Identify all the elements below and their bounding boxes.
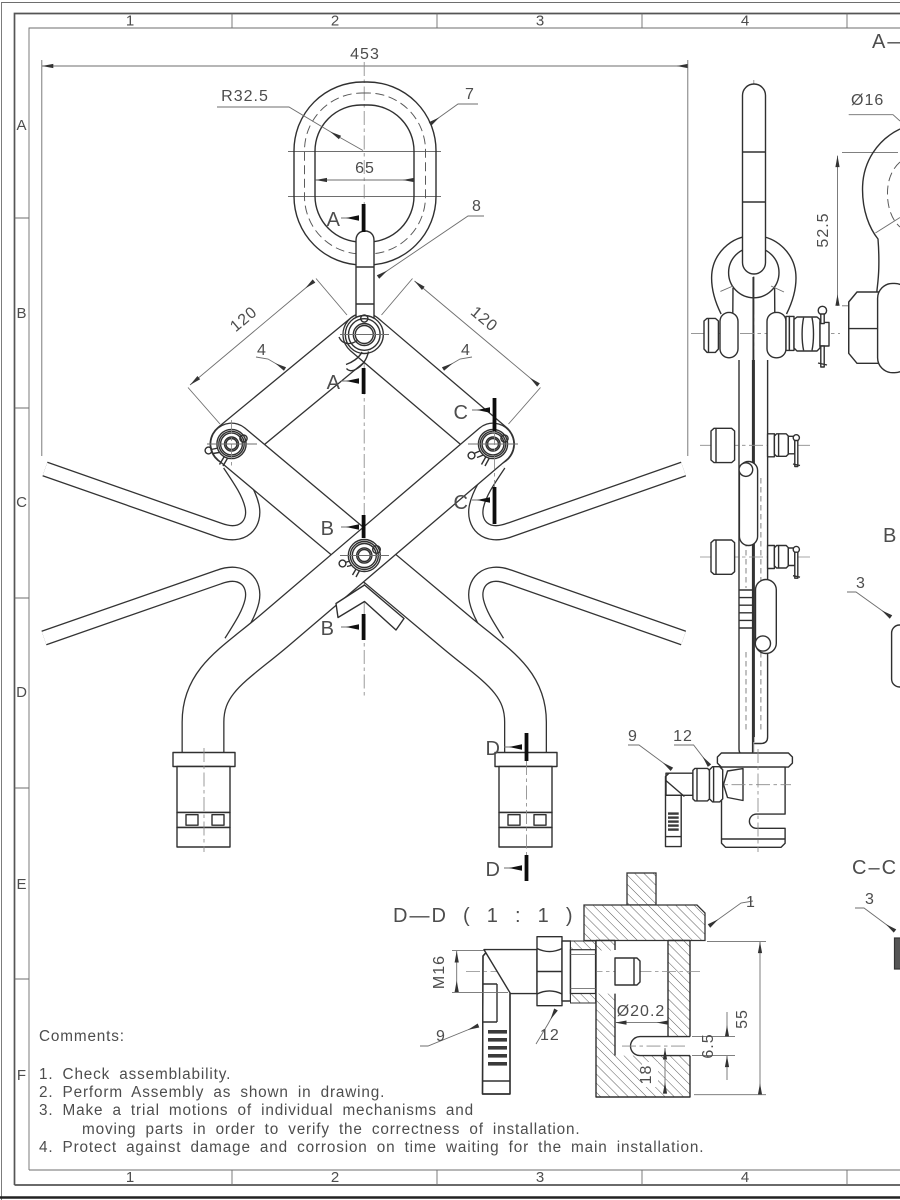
svg-text:8: 8 [472,198,482,215]
svg-text:D: D [486,738,502,760]
svg-text:Ø16: Ø16 [851,92,884,109]
svg-text:3: 3 [865,891,875,908]
svg-text:A: A [327,372,342,394]
svg-text:4: 4 [461,342,471,359]
svg-text:B: B [321,618,336,640]
svg-text:C: C [454,402,470,424]
svg-text:12: 12 [673,728,693,745]
svg-text:2: 2 [331,1169,339,1186]
svg-text:1: 1 [126,1169,134,1186]
svg-text:3: 3 [536,1169,544,1186]
svg-text:3: 3 [536,13,544,30]
svg-text:D—D ( 1 : 1 ): D—D ( 1 : 1 ) [393,905,575,927]
svg-text:Comments:: Comments: [39,1028,125,1045]
svg-text:moving parts in order to: moving parts in order to verify the corr… [82,1121,581,1138]
svg-text:Ø20.2: Ø20.2 [617,1003,666,1020]
svg-text:453: 453 [350,46,380,63]
svg-text:55: 55 [734,1009,751,1029]
svg-text:B: B [16,305,26,322]
svg-text:A—: A— [872,31,900,53]
svg-text:4: 4 [741,13,749,30]
svg-text:7: 7 [465,86,475,103]
svg-text:65: 65 [355,160,375,177]
svg-text:3: 3 [856,575,866,592]
svg-text:52.5: 52.5 [815,212,832,247]
svg-text:3. Make a trial motions o: 3. Make a trial motions of individual me… [39,1102,474,1119]
svg-text:D: D [486,859,502,881]
svg-text:9: 9 [628,728,638,745]
svg-text:R32.5: R32.5 [221,88,269,105]
svg-text:B: B [321,518,336,540]
svg-text:D: D [16,684,27,701]
svg-text:9: 9 [436,1028,446,1045]
svg-text:A: A [327,209,342,231]
svg-text:F: F [17,1067,26,1084]
svg-text:4. Protect against damage: 4. Protect against damage and corrosion … [39,1139,704,1156]
svg-text:M16: M16 [431,955,448,989]
svg-text:C: C [454,492,470,514]
svg-text:2. Perform Assembly as sho: 2. Perform Assembly as shown in drawing. [39,1084,385,1101]
svg-text:A: A [16,117,26,134]
svg-text:C: C [16,494,27,511]
svg-text:B: B [883,525,898,547]
svg-text:12: 12 [540,1027,560,1044]
svg-text:1: 1 [126,13,134,30]
svg-text:4: 4 [257,342,267,359]
svg-text:1: 1 [746,894,756,911]
svg-text:2: 2 [331,13,339,30]
svg-text:E: E [16,876,26,893]
svg-text:18: 18 [638,1065,655,1085]
svg-text:1. Check assemblability.: 1. Check assemblability. [39,1066,231,1083]
svg-text:C–C: C–C [852,857,898,879]
svg-text:6.5: 6.5 [700,1033,717,1058]
svg-text:4: 4 [741,1169,749,1186]
